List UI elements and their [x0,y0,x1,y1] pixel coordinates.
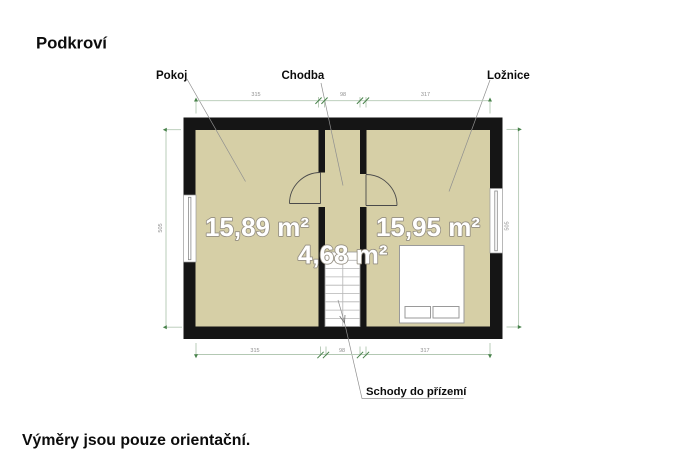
svg-text:505: 505 [158,223,164,232]
svg-text:Podkroví: Podkroví [36,34,108,53]
svg-text:15,89 m²: 15,89 m² [205,212,309,242]
svg-text:15,95 m²: 15,95 m² [376,212,480,242]
svg-text:98: 98 [339,348,345,354]
svg-text:317: 317 [421,92,430,98]
svg-text:Chodba: Chodba [282,70,325,82]
svg-text:505: 505 [505,221,511,230]
svg-text:315: 315 [250,348,259,354]
svg-text:Schody do přízemí: Schody do přízemí [366,386,467,398]
svg-text:317: 317 [420,348,429,354]
svg-text:Ložnice: Ložnice [487,70,530,82]
svg-text:98: 98 [340,92,346,98]
svg-text:4,68 m²: 4,68 m² [298,240,388,270]
svg-text:315: 315 [251,92,260,98]
svg-text:Pokoj: Pokoj [156,70,187,82]
svg-text:Výměry jsou pouze orientační.: Výměry jsou pouze orientační. [22,432,250,449]
